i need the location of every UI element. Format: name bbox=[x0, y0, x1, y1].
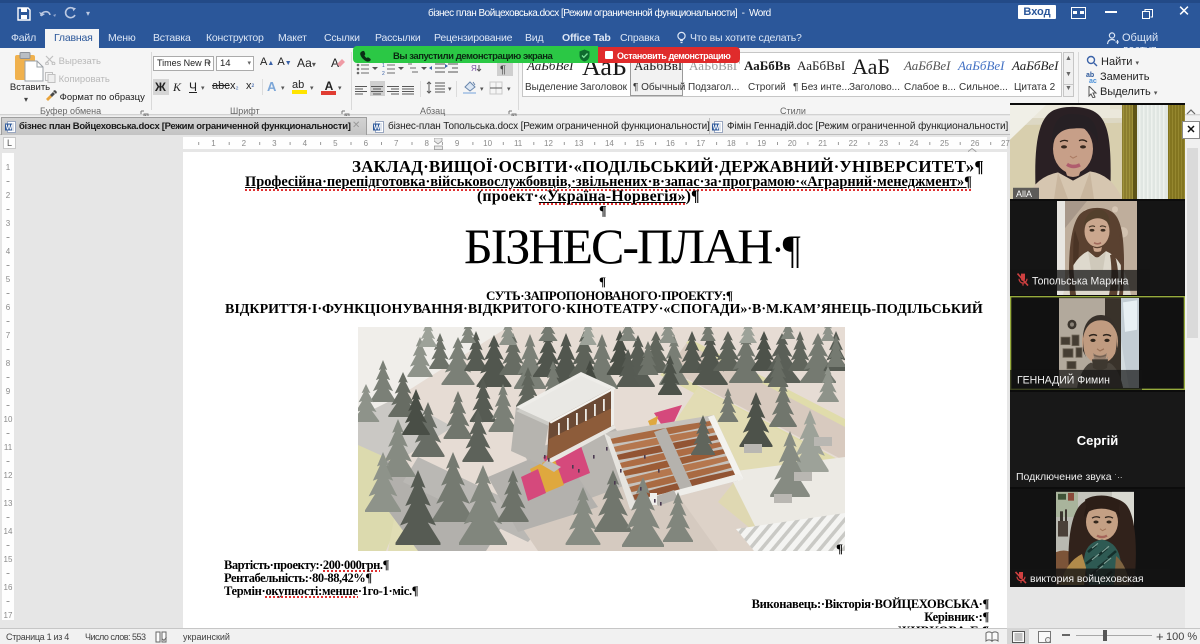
svg-text:7: 7 bbox=[394, 139, 399, 148]
svg-text:5: 5 bbox=[333, 139, 338, 148]
svg-text:10: 10 bbox=[4, 415, 13, 424]
svg-text:22: 22 bbox=[849, 139, 858, 148]
svg-text:14: 14 bbox=[605, 139, 614, 148]
svg-text:15: 15 bbox=[635, 139, 644, 148]
svg-text:3: 3 bbox=[6, 219, 11, 228]
svg-text:2: 2 bbox=[6, 191, 11, 200]
svg-text:ГЕННАДИЙ Фимин: ГЕННАДИЙ Фимин bbox=[1017, 373, 1110, 386]
svg-text:Я: Я bbox=[471, 64, 477, 73]
svg-text:1: 1 bbox=[211, 139, 216, 148]
svg-text:4: 4 bbox=[303, 139, 308, 148]
svg-text:21: 21 bbox=[818, 139, 827, 148]
svg-text:5: 5 bbox=[6, 275, 11, 284]
svg-text:11: 11 bbox=[514, 139, 523, 148]
svg-text:W: W bbox=[6, 125, 13, 132]
svg-text:27: 27 bbox=[1001, 139, 1010, 148]
svg-text:2: 2 bbox=[242, 139, 247, 148]
svg-text:Топольська Марина: Топольська Марина bbox=[1032, 275, 1129, 287]
svg-text:13: 13 bbox=[4, 499, 13, 508]
svg-text:8: 8 bbox=[424, 139, 429, 148]
svg-text:1: 1 bbox=[6, 163, 11, 172]
svg-text:ac: ac bbox=[1089, 78, 1097, 83]
svg-text:25: 25 bbox=[940, 139, 949, 148]
svg-text:9: 9 bbox=[6, 387, 11, 396]
svg-text:11: 11 bbox=[4, 443, 13, 452]
svg-text:9: 9 bbox=[455, 139, 460, 148]
svg-text:виктория войцеховская: виктория войцеховская bbox=[1030, 574, 1144, 585]
svg-text:17: 17 bbox=[696, 139, 705, 148]
svg-text:10: 10 bbox=[483, 139, 492, 148]
svg-text:12: 12 bbox=[4, 471, 13, 480]
svg-text:16: 16 bbox=[4, 583, 13, 592]
svg-text:19: 19 bbox=[757, 139, 766, 148]
svg-text:6: 6 bbox=[6, 303, 11, 312]
svg-text:13: 13 bbox=[575, 139, 584, 148]
svg-text:7: 7 bbox=[6, 331, 11, 340]
svg-text:14: 14 bbox=[4, 527, 13, 536]
svg-text:15: 15 bbox=[4, 555, 13, 564]
svg-text:20: 20 bbox=[788, 139, 797, 148]
svg-text:12: 12 bbox=[544, 139, 553, 148]
svg-text:W: W bbox=[374, 125, 381, 132]
svg-text:¶: ¶ bbox=[500, 64, 506, 76]
svg-text:17: 17 bbox=[4, 611, 13, 620]
svg-text:6: 6 bbox=[364, 139, 369, 148]
svg-text:18: 18 bbox=[727, 139, 736, 148]
svg-text:4: 4 bbox=[6, 247, 11, 256]
svg-text:1: 1 bbox=[382, 63, 385, 69]
svg-text:W: W bbox=[713, 125, 720, 132]
svg-text:24: 24 bbox=[910, 139, 919, 148]
svg-text:2: 2 bbox=[382, 71, 385, 76]
svg-text:8: 8 bbox=[6, 359, 11, 368]
svg-text:23: 23 bbox=[879, 139, 888, 148]
svg-text:16: 16 bbox=[666, 139, 675, 148]
svg-text:AllA: AllA bbox=[1016, 189, 1033, 199]
svg-text:3: 3 bbox=[272, 139, 277, 148]
